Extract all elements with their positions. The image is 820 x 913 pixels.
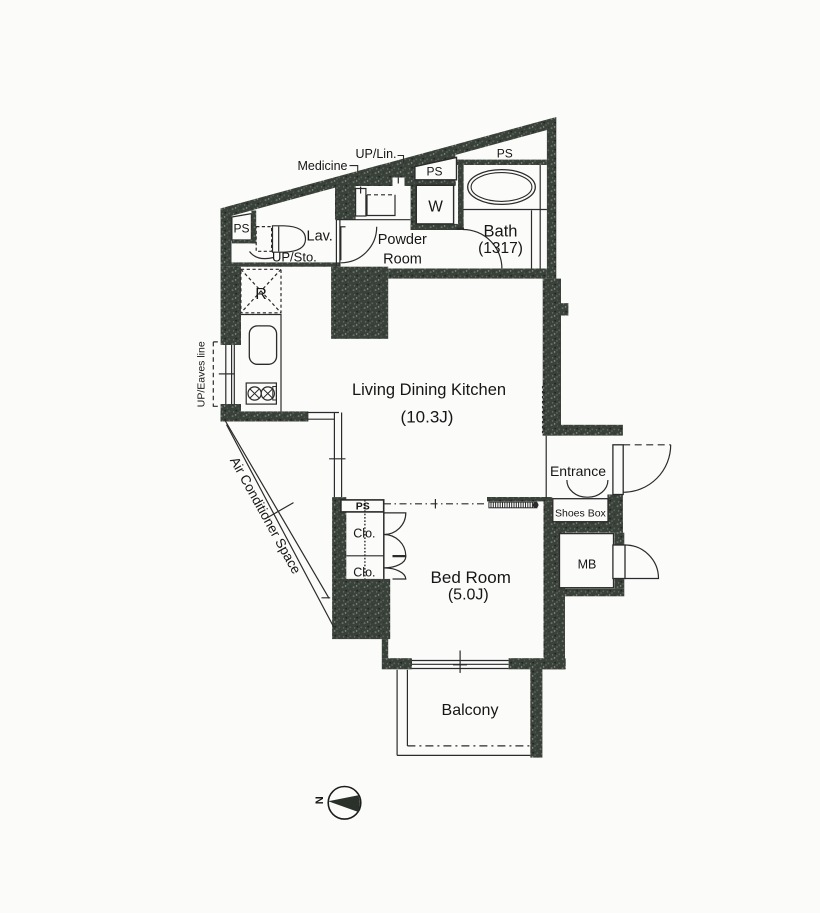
svg-text:UP/Sto.: UP/Sto. [272,250,317,265]
svg-text:UP/Lin.: UP/Lin. [356,147,397,161]
svg-text:R: R [255,286,267,303]
svg-text:W: W [428,198,443,215]
svg-text:Medicine: Medicine [297,159,347,173]
svg-text:Living Dining Kitchen: Living Dining Kitchen [352,381,506,399]
svg-text:Lav.: Lav. [307,229,333,245]
svg-text:Clo.: Clo. [353,527,375,541]
svg-text:(5.0J): (5.0J) [448,587,489,604]
svg-text:PS: PS [497,147,513,161]
svg-text:(1317): (1317) [478,240,523,257]
svg-text:UP/Eaves line: UP/Eaves line [196,341,208,407]
svg-text:Clo.: Clo. [353,566,375,580]
svg-text:Room: Room [383,252,422,268]
svg-text:Bath: Bath [484,223,518,241]
svg-text:N: N [314,796,326,804]
svg-text:Bed Room: Bed Room [431,568,511,587]
svg-text:MB: MB [578,558,597,572]
svg-text:PS: PS [233,222,249,236]
svg-text:PS: PS [426,165,442,179]
svg-text:Entrance: Entrance [550,463,606,479]
svg-text:(10.3J): (10.3J) [401,408,454,427]
svg-text:Powder: Powder [378,232,427,248]
svg-text:Shoes Box: Shoes Box [555,508,607,520]
svg-text:Balcony: Balcony [442,702,499,719]
svg-text:PS: PS [356,501,370,513]
